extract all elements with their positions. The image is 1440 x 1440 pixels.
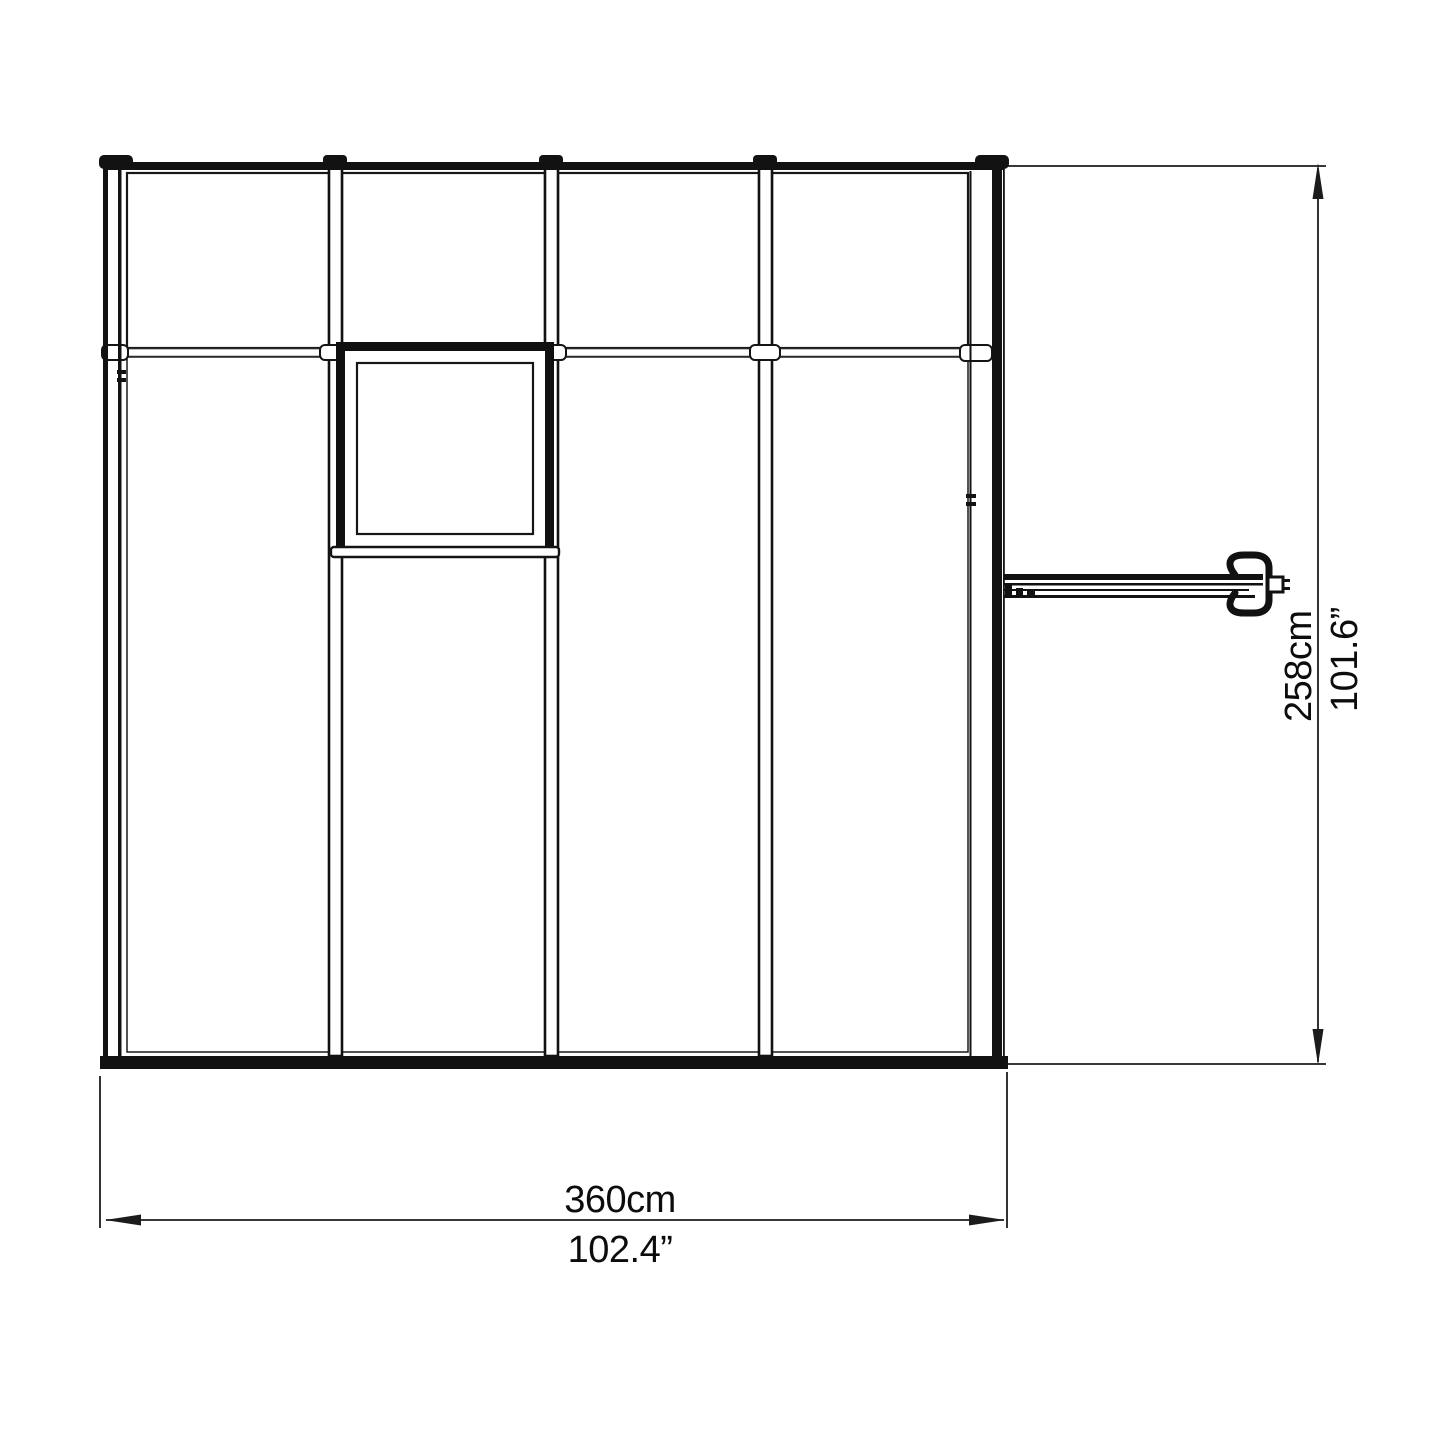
right-post-edge — [1003, 166, 1005, 1066]
mullion-2 — [545, 167, 558, 1056]
left-post-inner — [118, 170, 122, 1060]
handle-latch-tick-2 — [1283, 587, 1290, 590]
left-post-screw-2 — [117, 378, 126, 382]
base-rail — [100, 1056, 1008, 1069]
handle-bar-top — [1004, 574, 1263, 580]
right-post-inner — [970, 171, 972, 1056]
handle-bar-mid — [1004, 583, 1263, 586]
mullion-3 — [759, 167, 772, 1056]
left-post-screw-1 — [117, 370, 126, 374]
vent-window-sill — [331, 547, 559, 557]
width-label-metric: 360cm — [564, 1179, 676, 1221]
handle-mount-screw-3 — [1027, 590, 1035, 596]
right-post-screw-1 — [966, 494, 976, 498]
height-label-metric: 258cm — [1278, 610, 1320, 722]
width-arrow-right — [969, 1215, 1005, 1226]
height-dimension: 258cm 101.6” — [1006, 163, 1366, 1065]
top-panel-4 — [772, 173, 968, 348]
handle-bar-bottom — [1004, 595, 1255, 598]
rail-connector-3 — [750, 345, 780, 360]
wall-panel-3 — [558, 357, 759, 1052]
height-label-imperial: 101.6” — [1324, 607, 1366, 712]
handle-latch-nub — [1268, 577, 1283, 592]
handle-mount-screw-2 — [1016, 588, 1023, 596]
width-dimension: 360cm 102.4” — [100, 1072, 1007, 1271]
handle-bar-lower — [1004, 589, 1249, 591]
greenhouse-structure — [99, 155, 1009, 1069]
right-post-outer — [992, 162, 1002, 1068]
top-panel-3 — [558, 173, 759, 348]
rail-connector-right — [960, 345, 992, 361]
top-panel-1 — [127, 173, 329, 348]
height-arrow-down — [1313, 1029, 1324, 1065]
vent-window — [331, 347, 559, 558]
vent-window-frame — [341, 347, 550, 551]
door-handle — [1004, 555, 1290, 613]
left-post-outer — [103, 162, 108, 1068]
greenhouse-dimension-diagram: 258cm 101.6” 360cm 102.4” — [0, 0, 1440, 1440]
right-post-screw-2 — [966, 502, 976, 506]
height-arrow-up — [1313, 163, 1324, 199]
handle-latch-tick-1 — [1283, 579, 1290, 582]
width-label-imperial: 102.4” — [568, 1229, 673, 1271]
diagram-canvas: 258cm 101.6” 360cm 102.4” — [0, 0, 1440, 1440]
top-beam — [103, 162, 1004, 170]
mullion-1 — [329, 167, 342, 1056]
width-arrow-left — [105, 1215, 141, 1226]
wall-panel-1 — [127, 357, 329, 1052]
handle-mount-screw-1 — [1005, 585, 1012, 595]
wall-panel-4 — [772, 357, 968, 1052]
top-panel-2 — [342, 173, 545, 348]
